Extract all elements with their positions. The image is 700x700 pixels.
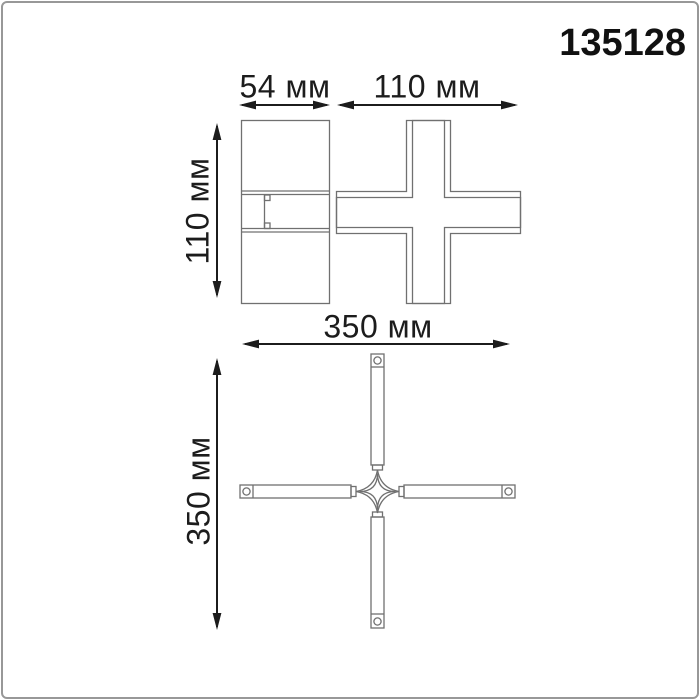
side-view-drawing bbox=[242, 121, 330, 304]
dim-label-plan-width: 350 мм bbox=[323, 309, 432, 346]
hub-inner-contour bbox=[360, 474, 396, 510]
left-arm-screw-hole bbox=[243, 488, 250, 495]
right-arm-screw-hole bbox=[505, 488, 512, 495]
top-arm-screw-hole bbox=[374, 357, 381, 364]
arrowhead-left bbox=[337, 101, 354, 110]
arrowhead-down bbox=[213, 281, 222, 298]
arrowhead-right bbox=[493, 340, 510, 349]
drawing-svg bbox=[0, 0, 700, 700]
side-view-body bbox=[242, 121, 330, 304]
x-connector-right-arm bbox=[404, 485, 515, 498]
cross-inner-contour bbox=[337, 121, 521, 304]
arrowhead-up bbox=[213, 358, 222, 375]
cross-front-drawing bbox=[337, 121, 521, 304]
dim-label-front-width: 110 мм bbox=[374, 69, 481, 106]
arrowhead-left bbox=[242, 340, 259, 349]
side-view-clip-tab bbox=[265, 195, 271, 201]
side-view-clip-tab bbox=[265, 223, 271, 229]
x-connector-top-arm bbox=[371, 354, 384, 465]
x-connector-bottom-arm bbox=[371, 517, 384, 628]
x-connector-drawing bbox=[240, 354, 515, 628]
dim-label-plan-height: 350 мм bbox=[181, 436, 218, 545]
arrowhead-down bbox=[213, 613, 222, 630]
top-arm-collar bbox=[373, 465, 383, 470]
right-arm-collar bbox=[399, 487, 404, 497]
left-arm-collar bbox=[351, 487, 356, 497]
dim-label-front-height: 110 мм bbox=[180, 158, 217, 265]
bottom-arm-screw-hole bbox=[374, 618, 381, 625]
product-code: 135128 bbox=[559, 22, 686, 65]
cross-outer-contour bbox=[337, 121, 521, 304]
arrowhead-up bbox=[213, 123, 222, 140]
x-connector-left-arm bbox=[240, 485, 351, 498]
dim-label-side-width: 54 мм bbox=[240, 69, 331, 106]
arrowhead-right bbox=[501, 101, 518, 110]
technical-drawing-canvas: 135128 54 мм 110 мм 110 мм 350 мм 350 мм bbox=[0, 0, 700, 700]
